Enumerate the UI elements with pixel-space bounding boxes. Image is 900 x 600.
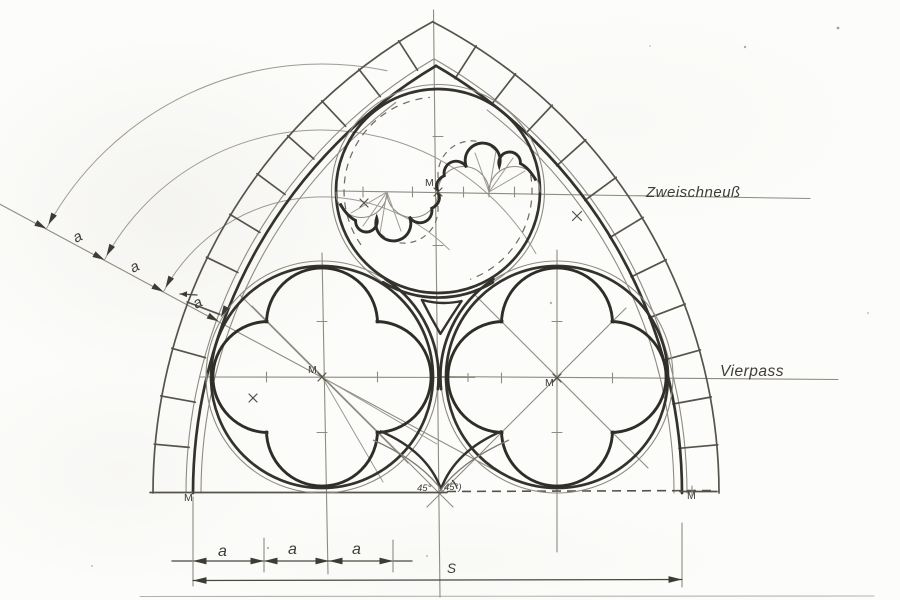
svg-text:a: a [218, 543, 227, 560]
svg-text:Zweischneuß: Zweischneuß [645, 184, 741, 201]
svg-text:S: S [447, 561, 456, 576]
svg-text:M: M [545, 377, 554, 389]
svg-text:a: a [288, 541, 297, 558]
svg-text:M: M [184, 492, 193, 504]
svg-text:M: M [308, 364, 317, 376]
svg-text:45°: 45° [417, 483, 432, 494]
svg-text:a: a [352, 541, 361, 558]
svg-text:M: M [425, 177, 434, 189]
svg-text:M: M [687, 490, 696, 502]
svg-text:Vierpass: Vierpass [720, 363, 784, 380]
svg-text:45°): 45°) [444, 482, 462, 493]
